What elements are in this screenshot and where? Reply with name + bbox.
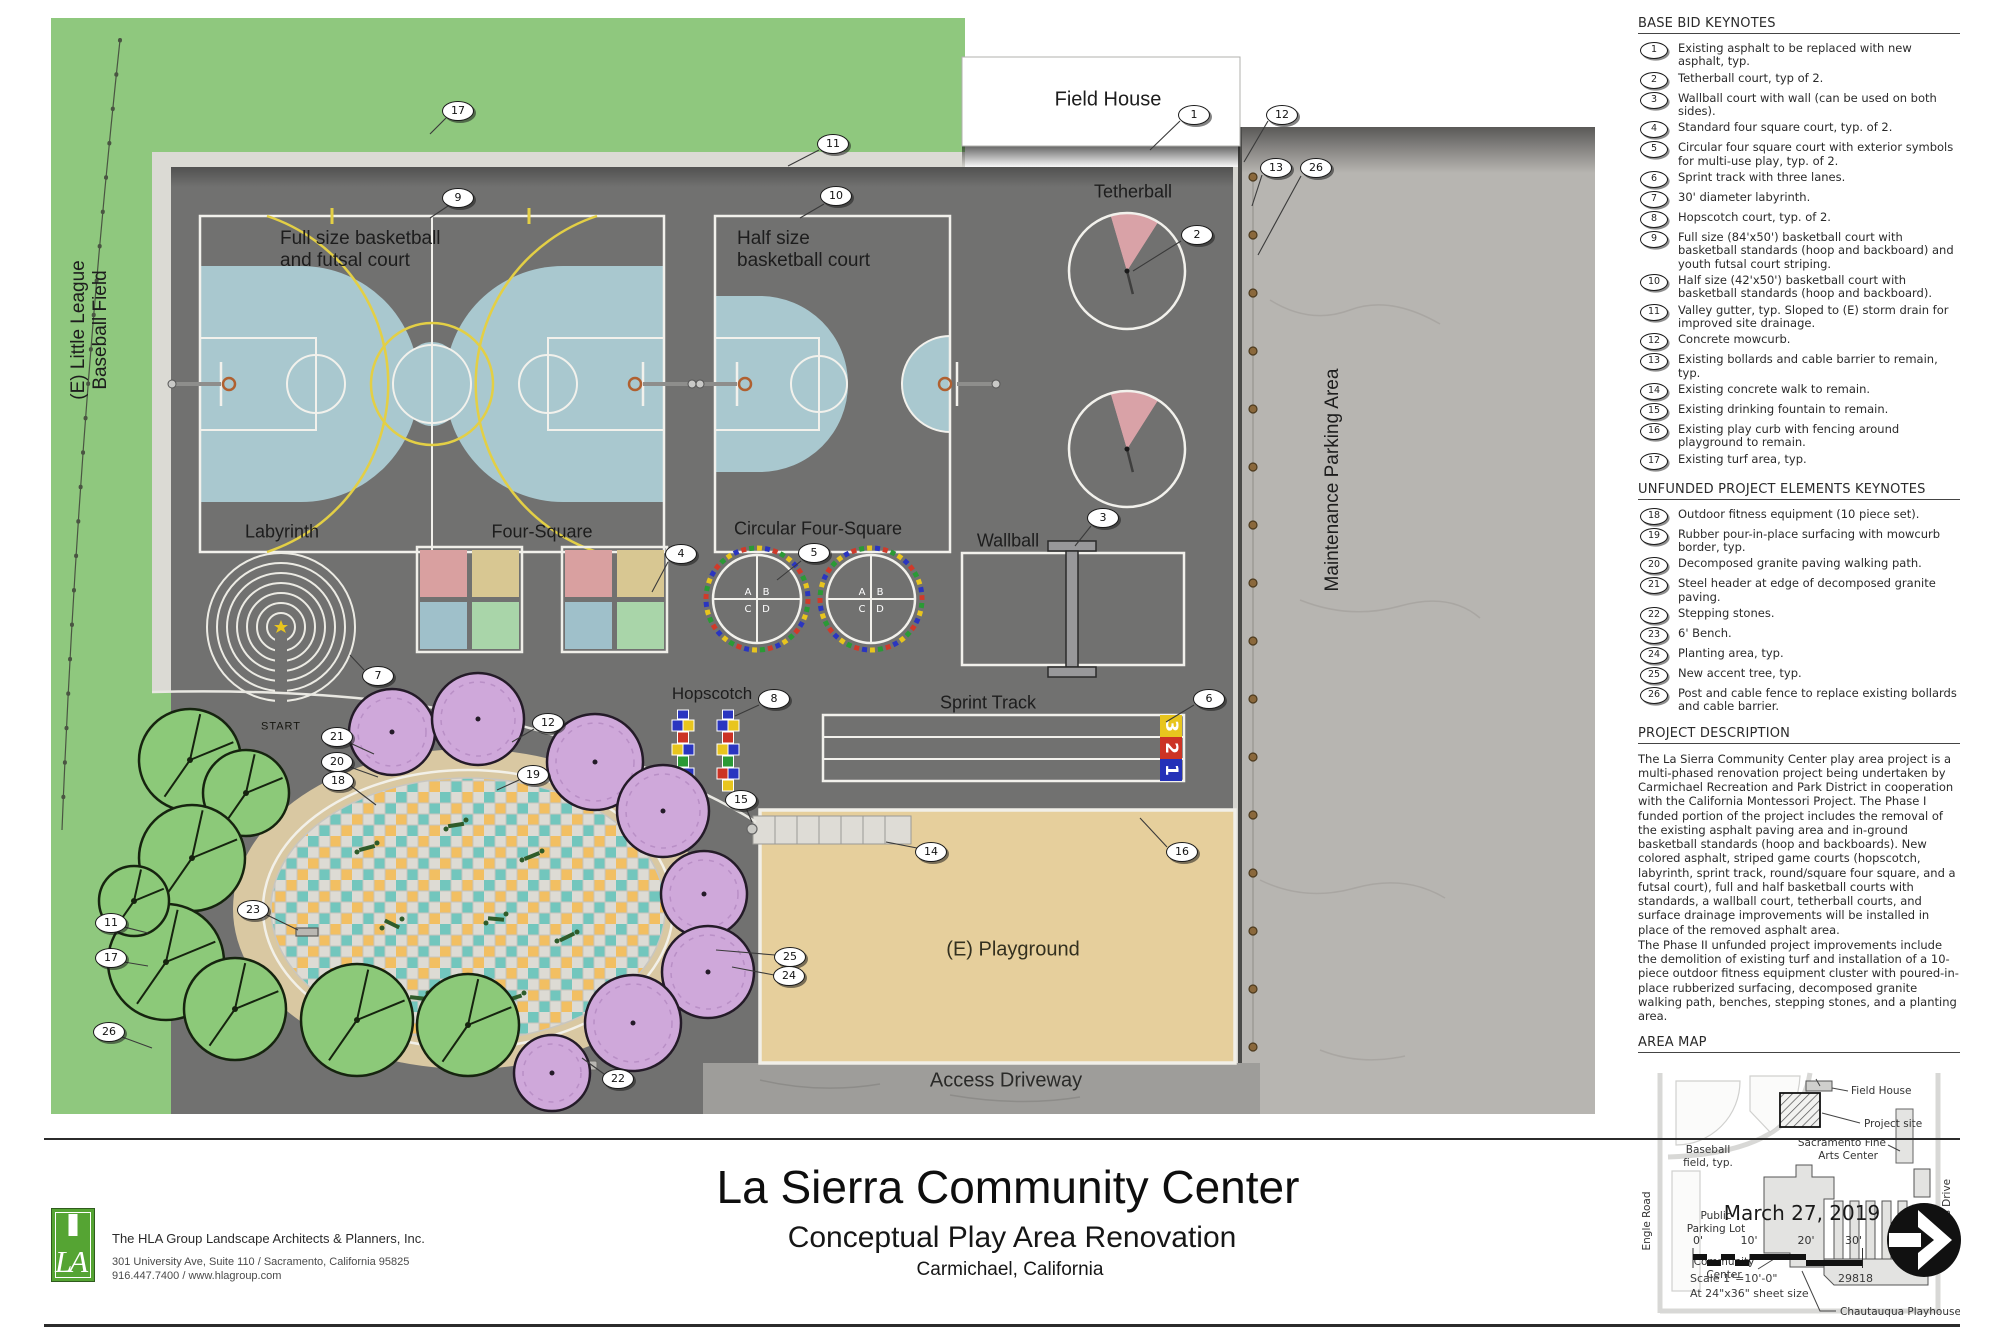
keynote-number-bubble: 14: [1640, 383, 1668, 400]
keynote-number-bubble: 5: [1640, 141, 1668, 158]
keynote-item: 21Steel header at edge of decomposed gra…: [1638, 577, 1960, 604]
keynote-text: Existing turf area, typ.: [1678, 453, 1807, 466]
sheet-bottom-line: [44, 1324, 1960, 1327]
map-label-field-house: Field House: [1851, 1085, 1911, 1097]
plan-keynote-bubble: 9: [442, 188, 474, 208]
plan-keynote-bubble: 15: [725, 790, 757, 810]
keynote-item: 17Existing turf area, typ.: [1638, 453, 1960, 470]
hla-logo-tbar: [69, 1214, 78, 1236]
keynote-text: Existing drinking fountain to remain.: [1678, 403, 1888, 416]
keynote-item: 1Existing asphalt to be replaced with ne…: [1638, 42, 1960, 69]
plan-keynote-bubble: 17: [442, 101, 474, 121]
keynote-text: Circular four square court with exterior…: [1678, 141, 1960, 168]
unfunded-keynote-list: 18Outdoor fitness equipment (10 piece se…: [1638, 508, 1960, 714]
keynote-text: Post and cable fence to replace existing…: [1678, 687, 1960, 714]
scale-tick-10: 10': [1740, 1234, 1757, 1247]
keynote-number-bubble: 6: [1640, 171, 1668, 188]
plan-keynote-bubble: 14: [915, 842, 947, 862]
keynote-text: Stepping stones.: [1678, 607, 1774, 620]
keynote-item: 4Standard four square court, typ. of 2.: [1638, 121, 1960, 138]
keynote-item: 11Valley gutter, typ. Sloped to (E) stor…: [1638, 304, 1960, 331]
keynote-number-bubble: 22: [1640, 607, 1668, 624]
keynote-text: Sprint track with three lanes.: [1678, 171, 1845, 184]
keynote-item: 22Stepping stones.: [1638, 607, 1960, 624]
sheet-location: Carmichael, California: [917, 1259, 1104, 1281]
plan-keynote-bubble: 13: [1260, 158, 1292, 178]
keynote-item: 20Decomposed granite paving walking path…: [1638, 557, 1960, 574]
keynote-text: Existing play curb with fencing around p…: [1678, 423, 1960, 450]
keynote-item: 15Existing drinking fountain to remain.: [1638, 403, 1960, 420]
plan-keynote-bubble: 6: [1193, 689, 1225, 709]
plan-keynote-bubble: 24: [773, 966, 805, 986]
plan-keynote-bubble: 11: [95, 913, 127, 933]
keynote-text: Tetherball court, typ of 2.: [1678, 72, 1823, 85]
hla-logo-letters: LA: [55, 1244, 85, 1280]
keynote-number-bubble: 9: [1640, 231, 1668, 248]
keynote-text: New accent tree, typ.: [1678, 667, 1802, 680]
plan-keynote-bubble: 12: [1266, 105, 1298, 125]
firm-address: 301 University Ave, Suite 110 / Sacramen…: [112, 1256, 409, 1268]
keynote-number-bubble: 23: [1640, 627, 1668, 644]
plan-keynote-bubble: 22: [602, 1069, 634, 1089]
plan-keynote-bubble: 10: [820, 186, 852, 206]
keynote-text: 6' Bench.: [1678, 627, 1732, 640]
plan-keynote-bubble: 8: [758, 689, 790, 709]
project-description-p1: The La Sierra Community Center play area…: [1638, 752, 1960, 937]
scale-bar: 0' 10' 20' 30': [1688, 1232, 1873, 1274]
plan-keynote-bubble: 25: [774, 947, 806, 967]
hla-logo: LA: [51, 1208, 95, 1282]
map-label-engle-road: Engle Road: [1641, 1192, 1653, 1251]
scale-tick-0: 0': [1693, 1234, 1703, 1247]
keynote-text: Decomposed granite paving walking path.: [1678, 557, 1922, 570]
map-label-baseball-2: field, typ.: [1683, 1157, 1733, 1169]
keynote-item: 19Rubber pour-in-place surfacing with mo…: [1638, 528, 1960, 555]
sheet-title: La Sierra Community Center: [717, 1160, 1300, 1214]
base-bid-heading: BASE BID KEYNOTES: [1638, 16, 1960, 34]
plan-keynote-bubble: 2: [1181, 225, 1213, 245]
keynote-text: Valley gutter, typ. Sloped to (E) storm …: [1678, 304, 1960, 331]
keynote-number-bubble: 15: [1640, 403, 1668, 420]
scale-tick-20: 20': [1797, 1234, 1814, 1247]
keynote-item: 2Tetherball court, typ of 2.: [1638, 72, 1960, 89]
keynote-item: 10Half size (42'x50') basketball court w…: [1638, 274, 1960, 301]
project-description-heading: PROJECT DESCRIPTION: [1638, 726, 1960, 744]
keynote-number-bubble: 20: [1640, 557, 1668, 574]
plan-keynote-bubble: 20: [321, 752, 353, 772]
plan-keynote-bubble: 4: [665, 544, 697, 564]
plan-keynote-bubble: 5: [798, 543, 830, 563]
keynote-item: 25New accent tree, typ.: [1638, 667, 1960, 684]
keynote-item: 14Existing concrete walk to remain.: [1638, 383, 1960, 400]
sheet-size-label: At 24"x36" sheet size: [1690, 1287, 1809, 1300]
keynote-text: Standard four square court, typ. of 2.: [1678, 121, 1892, 134]
keynote-text: Full size (84'x50') basketball court wit…: [1678, 231, 1960, 271]
keynote-text: Rubber pour-in-place surfacing with mowc…: [1678, 528, 1960, 555]
keynote-number-bubble: 17: [1640, 453, 1668, 470]
keynote-number-bubble: 16: [1640, 423, 1668, 440]
keynote-number-bubble: 10: [1640, 274, 1668, 291]
keynote-item: 12Concrete mowcurb.: [1638, 333, 1960, 350]
keynote-item: 3Wallball court with wall (can be used o…: [1638, 92, 1960, 119]
plan-keynote-bubble: 18: [322, 771, 354, 791]
keynote-item: 5Circular four square court with exterio…: [1638, 141, 1960, 168]
keynote-item: 9Full size (84'x50') basketball court wi…: [1638, 231, 1960, 271]
plan-keynote-bubble: 16: [1166, 842, 1198, 862]
plan-keynote-bubble: 7: [362, 666, 394, 686]
keynote-number-bubble: 7: [1640, 191, 1668, 208]
keynote-text: Steel header at edge of decomposed grani…: [1678, 577, 1960, 604]
unfunded-heading: UNFUNDED PROJECT ELEMENTS KEYNOTES: [1638, 482, 1960, 500]
plan-keynote-bubble: 3: [1087, 508, 1119, 528]
scale-label: Scale 1"=10'-0": [1690, 1272, 1777, 1285]
keynote-number-bubble: 12: [1640, 333, 1668, 350]
keynote-item: 730' diameter labyrinth.: [1638, 191, 1960, 208]
base-bid-keynote-list: 1Existing asphalt to be replaced with ne…: [1638, 42, 1960, 470]
keynote-item: 26Post and cable fence to replace existi…: [1638, 687, 1960, 714]
keynote-number-bubble: 4: [1640, 121, 1668, 138]
plan-keynote-bubble: 21: [321, 727, 353, 747]
firm-contact: 916.447.7400 / www.hlagroup.com: [112, 1270, 281, 1282]
plan-keynote-bubble: 17: [95, 948, 127, 968]
keynote-number-bubble: 1: [1640, 42, 1668, 59]
keynote-item: 18Outdoor fitness equipment (10 piece se…: [1638, 508, 1960, 525]
keynote-number-bubble: 11: [1640, 304, 1668, 321]
keynote-item: 8Hopscotch court, typ. of 2.: [1638, 211, 1960, 228]
keynote-item: 6Sprint track with three lanes.: [1638, 171, 1960, 188]
keynote-text: Existing asphalt to be replaced with new…: [1678, 42, 1960, 69]
keynotes-sidebar: BASE BID KEYNOTES 1Existing asphalt to b…: [1638, 16, 1960, 1329]
north-arrow-icon: [1884, 1200, 1964, 1280]
keynote-number-bubble: 21: [1640, 577, 1668, 594]
sheet-subtitle: Conceptual Play Area Renovation: [788, 1221, 1237, 1255]
firm-name: The HLA Group Landscape Architects & Pla…: [112, 1231, 425, 1246]
map-label-project-site: Project site: [1864, 1118, 1922, 1130]
plan-keynote-bubble: 19: [517, 765, 549, 785]
keynote-text: Hopscotch court, typ. of 2.: [1678, 211, 1831, 224]
keynote-item: 16Existing play curb with fencing around…: [1638, 423, 1960, 450]
keynote-number-bubble: 2: [1640, 72, 1668, 89]
titleblock-separator-line: [44, 1138, 1960, 1140]
keynote-number-bubble: 26: [1640, 687, 1668, 704]
keynote-text: Outdoor fitness equipment (10 piece set)…: [1678, 508, 1919, 521]
map-label-baseball: Baseball: [1686, 1144, 1731, 1156]
plan-keynote-bubble: 26: [93, 1022, 125, 1042]
plan-sheet: { "title_block": { "sheet_title": "La Si…: [0, 0, 2000, 1333]
keynote-text: Wallball court with wall (can be used on…: [1678, 92, 1960, 119]
keynote-number-bubble: 25: [1640, 667, 1668, 684]
plan-keynote-bubble: 23: [237, 900, 269, 920]
keynote-text: Concrete mowcurb.: [1678, 333, 1790, 346]
plan-keynote-bubble: 1: [1178, 105, 1210, 125]
plan-keynote-bubble: 26: [1300, 158, 1332, 178]
project-description-p2: The Phase II unfunded project improvemen…: [1638, 938, 1960, 1024]
scale-tick-30: 30': [1845, 1234, 1862, 1247]
keynote-text: Existing bollards and cable barrier to r…: [1678, 353, 1960, 380]
keynote-item: 236' Bench.: [1638, 627, 1960, 644]
keynote-item: 13Existing bollards and cable barrier to…: [1638, 353, 1960, 380]
keynote-number-bubble: 8: [1640, 211, 1668, 228]
project-number: 29818: [1838, 1272, 1873, 1285]
keynote-text: Planting area, typ.: [1678, 647, 1784, 660]
map-label-chautauqua: Chautauqua Playhouse: [1840, 1306, 1960, 1318]
plan-keynote-bubble: 11: [817, 134, 849, 154]
keynote-text: 30' diameter labyrinth.: [1678, 191, 1810, 204]
keynote-number-bubble: 19: [1640, 528, 1668, 545]
plot-date: March 27, 2019: [1724, 1201, 1880, 1225]
keynote-number-bubble: 24: [1640, 647, 1668, 664]
area-map-heading: AREA MAP: [1638, 1035, 1960, 1053]
keynote-item: 24Planting area, typ.: [1638, 647, 1960, 664]
keynote-text: Existing concrete walk to remain.: [1678, 383, 1870, 396]
keynote-number-bubble: 3: [1640, 92, 1668, 109]
keynote-number-bubble: 13: [1640, 353, 1668, 370]
map-label-arts-center-2: Arts Center: [1818, 1150, 1878, 1162]
keynote-number-bubble: 18: [1640, 508, 1668, 525]
plan-keynote-bubble: 12: [532, 713, 564, 733]
keynote-text: Half size (42'x50') basketball court wit…: [1678, 274, 1960, 301]
